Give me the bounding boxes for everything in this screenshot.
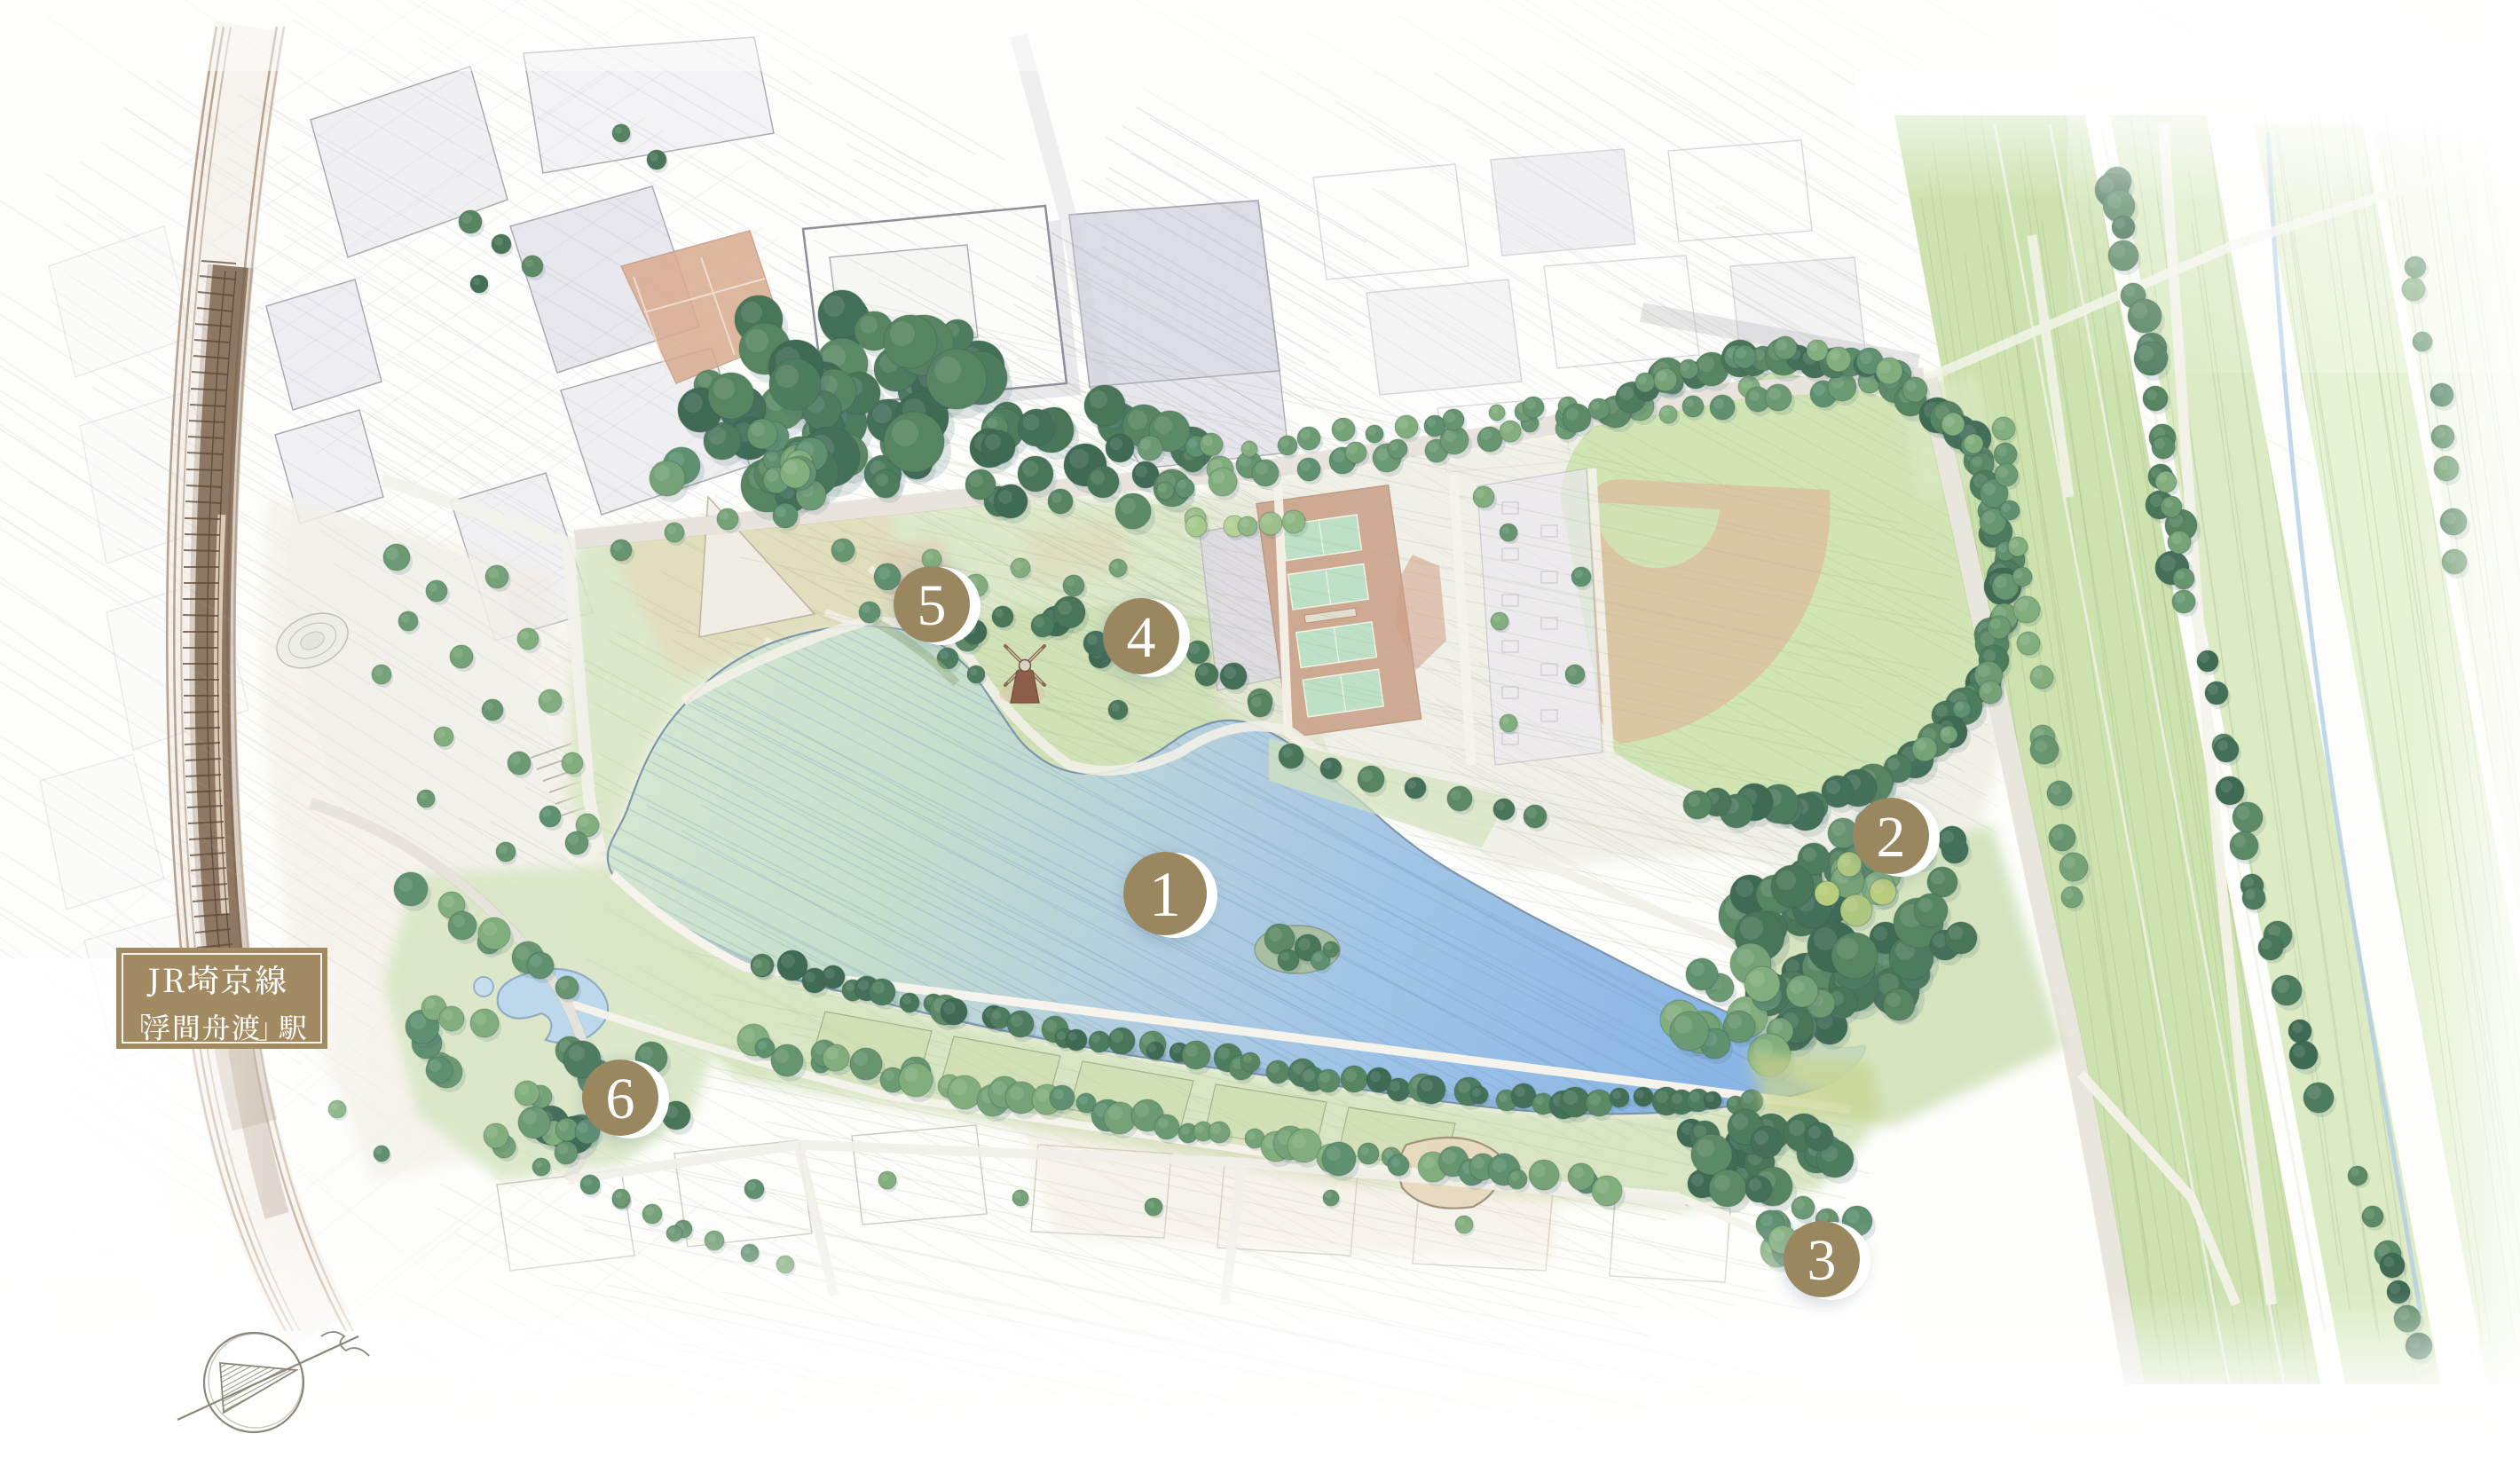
svg-text:4: 4 — [1127, 605, 1156, 670]
svg-text:5: 5 — [917, 573, 947, 638]
svg-text:3: 3 — [1807, 1228, 1837, 1293]
svg-text:1: 1 — [1149, 859, 1181, 930]
svg-text:2: 2 — [1877, 805, 1906, 870]
svg-text:6: 6 — [606, 1067, 635, 1131]
